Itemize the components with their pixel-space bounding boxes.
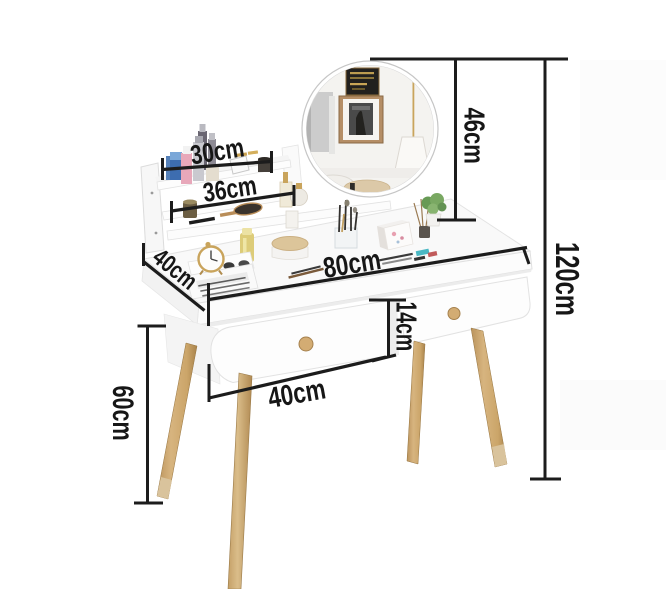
- svg-text:46cm: 46cm: [458, 108, 490, 164]
- svg-text:60cm: 60cm: [106, 386, 140, 441]
- svg-text:14cm: 14cm: [389, 302, 421, 352]
- svg-text:120cm: 120cm: [548, 242, 585, 316]
